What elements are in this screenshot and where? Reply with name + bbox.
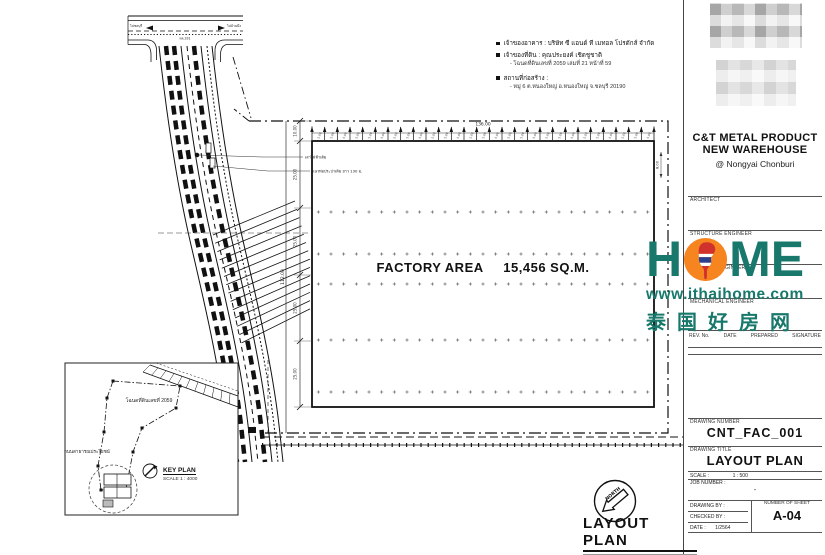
main-title: LAYOUT PLAN SCALE 1 : 500	[583, 515, 697, 555]
home-chinese-name: 泰国好房网	[646, 306, 818, 335]
right-dim-label: 8.00	[656, 160, 660, 169]
titleblock-divider	[751, 500, 752, 532]
architect-label: ARCHITECT	[690, 197, 720, 203]
owner-land-note: เจ้าของที่ดิน : คุณประยงค์ เชิดชูชาติ	[496, 52, 711, 61]
drawing-by-label: DRAWING BY :	[690, 503, 725, 509]
owner-annotations: เจ้าของอาคาร : บริษัท ซี แอนด์ ที เมทอล …	[496, 40, 711, 92]
censored-block-top	[710, 3, 802, 48]
drawing-title-value: LAYOUT PLAN	[684, 453, 825, 468]
total-width-label: 136.00	[475, 122, 491, 128]
keyplan-deed-text: โฉนดที่ดินเลขที่ 2059	[116, 397, 182, 405]
svg-text:25.00: 25.00	[293, 368, 298, 380]
project-name: C&T METAL PRODUCT NEW WAREHOUSE @ Nongya…	[684, 132, 825, 169]
factory-area-label: FACTORY AREA 15,456 SQ.M.	[312, 260, 654, 275]
drawing-number-label: DRAWING NUMBER	[690, 419, 740, 425]
south-fence	[248, 427, 683, 445]
deed-note: - โฉนดที่ดินเลขที่ 2059 เล่มที่ 21 หน้าท…	[510, 61, 711, 69]
drawing-number-value: CNT_FAC_001	[684, 426, 825, 440]
project-line2: NEW WAREHOUSE	[684, 144, 825, 156]
project-location: @ Nongyai Chonburi	[684, 159, 825, 169]
factory-area-value: 15,456 SQ.M.	[503, 260, 589, 275]
sheet-number-label: NUMBER OF SHEET	[754, 501, 820, 506]
home-letter-h: H	[646, 236, 682, 282]
keyplan-road-text: ถนนสาธารณประโยชน์	[64, 449, 114, 456]
keyplan-title: KEY PLAN	[163, 467, 196, 475]
home-letter-m: M	[729, 236, 771, 282]
svg-text:25.00: 25.00	[293, 168, 298, 180]
factory-label-text: FACTORY AREA	[377, 260, 484, 275]
job-number-label: JOB NUMBER :	[690, 480, 726, 486]
svg-text:112.00: 112.00	[280, 269, 286, 285]
site-label: สถานที่ก่อสร้าง :	[496, 75, 711, 84]
owner-building-note: เจ้าของอาคาร : บริษัท ซี แอนด์ ที เมทอล …	[496, 40, 711, 49]
road-note-2: แนวท่อประปาเดิม ยาว 130 ม.	[312, 169, 362, 174]
key-plan	[65, 363, 238, 515]
svg-text:25.00: 25.00	[293, 235, 298, 247]
road-note-1: เสาไฟฟ้าเดิม	[305, 155, 327, 160]
sheet-number-value: A-04	[754, 508, 820, 523]
road-notes: เสาไฟฟ้าเดิม แนวท่อประปาเดิม ยาว 130 ม.	[195, 143, 363, 174]
column-grid	[317, 210, 650, 393]
home-letter-e: E	[771, 236, 804, 282]
date-value: 1/2564	[715, 525, 730, 531]
road-dest-left: ไปชลบุรี	[129, 23, 142, 29]
main-title-text: LAYOUT PLAN	[583, 515, 697, 552]
job-number-value: -	[684, 487, 825, 494]
svg-text:10.00: 10.00	[293, 125, 298, 137]
home-url: www.ithaihome.com	[646, 286, 818, 304]
site-detail: - หมู่ 6 ต.หนองใหญ่ อ.หนองใหญ่ จ.ชลบุรี …	[510, 84, 711, 92]
dimension-chain: 10.0025.0025.0025.0025.00112.00	[280, 118, 312, 433]
censored-block-bottom	[716, 60, 796, 106]
right-dimension	[660, 152, 663, 178]
keyplan-scale: SCALE 1 : 4000	[163, 477, 197, 482]
home-logo-word: H M E	[646, 234, 818, 284]
layout-plan-sheet: ไปชลบุรี ไปบ้านบึง ทล.331 5.005.005.005.…	[0, 0, 825, 555]
road-name: ทล.331	[179, 37, 190, 41]
svg-text:25.00: 25.00	[293, 302, 298, 314]
ithaihome-watermark: H M E www.itha	[646, 234, 818, 335]
road-dest-right: ไปบ้านบึง	[226, 24, 241, 28]
project-line1: C&T METAL PRODUCT	[684, 132, 825, 144]
home-thailand-icon	[683, 237, 728, 282]
